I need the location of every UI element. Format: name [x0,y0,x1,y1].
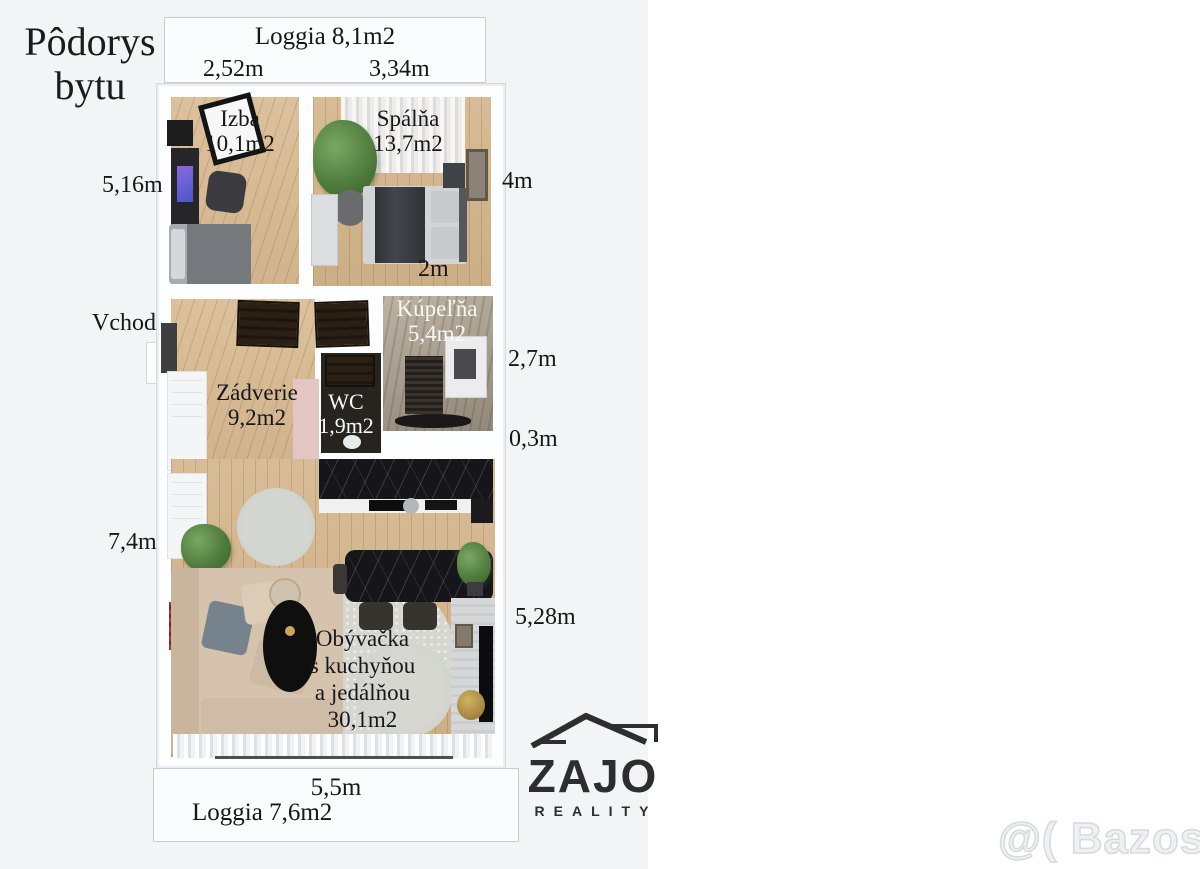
gold-pouf [457,690,485,720]
label-obyvacka-area: 30,1m2 [280,706,445,733]
living-plant [181,524,231,572]
izba-bed [169,224,251,284]
bazos-watermark: @( Bazos.sk [998,814,1200,864]
label-obyvacka-line1: Obývačka [280,625,445,652]
zajo-reality-logo: ZAJO REALITY [521,708,665,819]
dining-chair-left [333,564,347,594]
window-frame [215,756,453,759]
label-wc-name: WC [314,390,378,414]
tv-wall-frame [455,624,473,648]
label-izba-area: 10,1m2 [180,131,300,156]
dining-plant [457,542,491,586]
sofa-backrest [171,568,199,758]
label-kupelna-area: 5,4m2 [384,321,490,346]
dim-left-lower: 7,4m [108,529,157,555]
izba-bed-pillow [171,229,185,279]
label-obyvacka: Obývačka s kuchyňou a jedálňou 30,1m2 [280,625,445,734]
spalna-bed [363,186,467,264]
label-spalna-name: Spálňa [346,106,470,131]
dim-living: 5,28m [515,604,576,630]
label-izba: Izba 10,1m2 [180,106,300,157]
spalna-pillow-1 [431,191,459,223]
wc-door [325,355,375,387]
label-wc: WC 1,9m2 [314,390,378,438]
label-entrance: Vchod [92,310,156,336]
spalna-wall-picture [466,149,488,201]
page-title: Pôdorys bytu [14,20,166,108]
floorplan-photo: Pôdorys bytu Loggia 8,1m2 2,52m 3,34m [0,0,648,869]
house-roof-icon [522,708,664,748]
label-kupelna-name: Kúpeľňa [384,296,490,321]
dim-bottom-width: 5,5m [154,774,518,802]
loggia-bottom: 5,5m Loggia 7,6m2 [153,768,519,842]
label-wc-area: 1,9m2 [314,414,378,438]
living-curtains [173,734,495,758]
dim-wall-offset: 0,3m [509,426,558,452]
izba-chair [204,170,247,215]
izba-bed-blanket [187,224,251,284]
kitchen-tall-unit [471,499,493,523]
loggia-bottom-label: Loggia 7,6m2 [192,799,332,827]
izba-monitor [177,166,193,202]
label-zadverie-name: Zádverie [196,380,318,405]
label-spalna: Spálňa 13,7m2 [346,106,470,157]
izba-desk [171,148,199,228]
kitchen-sink [403,498,419,514]
bathroom-mirror [454,349,476,379]
kitchen-counter [319,459,493,499]
label-spalna-area: 13,7m2 [346,131,470,156]
spalna-bed-blanket [375,187,425,263]
dim-spalna-width: 2m [418,256,449,282]
label-obyvacka-line3: a jedálňou [280,679,445,706]
label-izba-name: Izba [180,106,300,131]
logo-subtitle: REALITY [521,803,665,819]
label-zadverie: Zádverie 9,2m2 [196,380,318,431]
door-spalna [314,300,370,348]
kitchen-oven [425,500,457,510]
label-zadverie-area: 9,2m2 [196,405,318,430]
spalna-pillow-2 [431,227,459,259]
door-izba [236,300,300,348]
dim-right-bedroom: 4m [502,168,533,194]
label-kupelna: Kúpeľňa 5,4m2 [384,296,490,347]
dining-plant-pot [467,582,483,596]
page: { "title": { "line1": "Pôdorys", "line2"… [0,0,1200,869]
spalna-dresser [311,194,338,266]
bathroom-shower-floor [405,356,443,414]
logo-name: ZAJO [521,753,665,799]
round-rug-small [237,488,315,566]
page-title-line1: Pôdorys [14,20,166,64]
page-title-line2: bytu [14,64,166,108]
spalna-plant-pot [333,190,367,226]
bathroom-mat [395,414,471,428]
entrance-door [161,323,177,373]
dim-left-wall: 5,16m [102,172,163,198]
dim-spalna-top-width: 3,34m [369,56,430,82]
spalna-nightstand [443,163,465,188]
dim-bathroom: 2,7m [508,346,557,372]
label-obyvacka-line2: s kuchyňou [280,652,445,679]
dim-izba-width: 2,52m [203,56,264,82]
loggia-top: Loggia 8,1m2 2,52m 3,34m [164,17,486,83]
loggia-top-label: Loggia 8,1m2 [165,23,485,51]
